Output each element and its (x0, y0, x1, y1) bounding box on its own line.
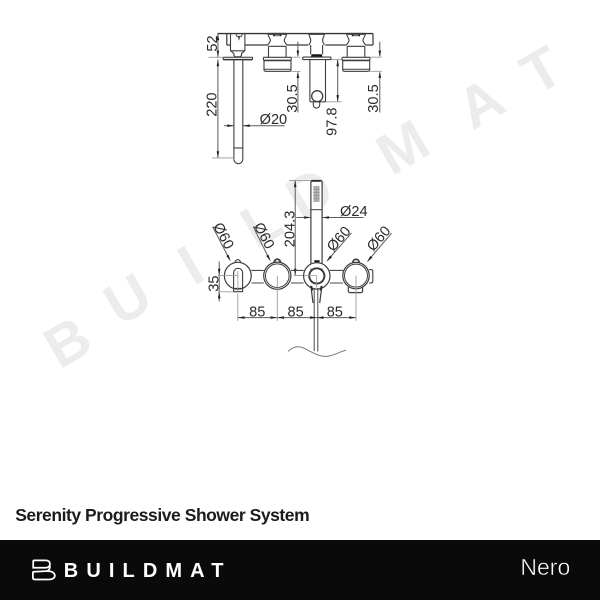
svg-text:Ø60: Ø60 (364, 223, 394, 254)
svg-text:97.8: 97.8 (325, 107, 341, 135)
svg-text:85: 85 (327, 305, 343, 321)
svg-text:85: 85 (249, 305, 265, 321)
svg-text:35: 35 (206, 276, 222, 292)
svg-text:30.5: 30.5 (366, 84, 382, 112)
svg-text:204.3: 204.3 (282, 211, 298, 248)
svg-text:30.5: 30.5 (285, 84, 301, 112)
svg-text:85: 85 (288, 305, 304, 321)
svg-text:Ø20: Ø20 (260, 112, 288, 128)
svg-text:Ø60: Ø60 (324, 224, 354, 255)
svg-text:Ø24: Ø24 (340, 204, 368, 220)
svg-text:52: 52 (205, 35, 221, 51)
svg-text:220: 220 (204, 92, 220, 116)
